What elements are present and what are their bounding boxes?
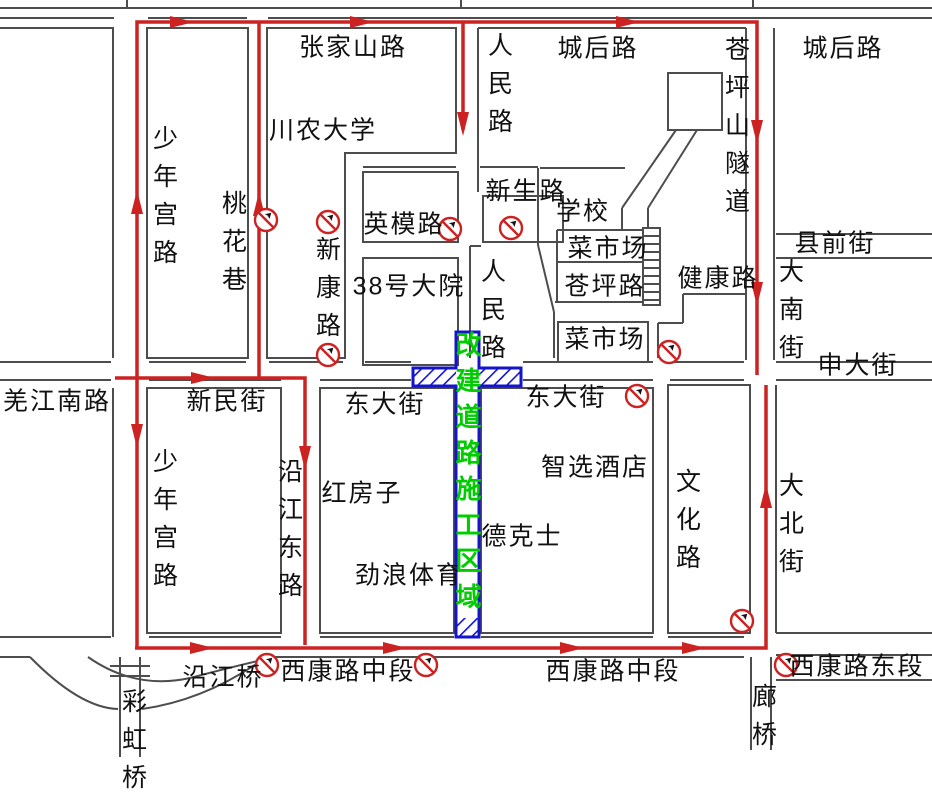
road-label-xinkang: 新康路 [314, 236, 339, 350]
detour-path-xikang [135, 385, 766, 648]
detour-arrow-icon [751, 120, 763, 144]
detour-arrow-icon [191, 372, 215, 384]
detour-arrow-icon [383, 642, 407, 654]
road-label-shaoniangong-south: 少年宫路 [151, 448, 176, 600]
road-label-xinsheng: 新生路 [485, 180, 566, 205]
detour-path-outer-loop [137, 22, 757, 648]
detour-arrow-icon [760, 484, 772, 508]
no-entry-sign-icon [317, 211, 339, 233]
construction-hatch-west [413, 368, 456, 386]
road-label-renmin-mid: 人民路 [479, 258, 504, 372]
place-label-hongfangzi: 红房子 [321, 482, 402, 507]
place-label-zhixuan-hotel: 智选酒店 [541, 456, 649, 481]
road-label-jiankang: 健康路 [677, 267, 758, 292]
road-label-wenhua: 文化路 [674, 468, 699, 582]
road-label-zhangjiashan: 张家山路 [299, 36, 407, 61]
place-label-yanjiang-bridge: 沿江桥 [182, 666, 263, 691]
no-entry-sign-icon [658, 341, 680, 363]
road-label-dongda-west: 东大街 [344, 393, 425, 418]
place-label-school: 学校 [556, 200, 610, 225]
road-label-xikang-east: 西康路东段 [789, 655, 924, 680]
detour-arrow-icon [131, 424, 143, 448]
place-label-jinlang-sports: 劲浪体育 [355, 564, 463, 589]
detour-arrow-icon [457, 112, 469, 136]
road-label-cangpingshan-tunnel: 苍坪山隧道 [723, 36, 748, 226]
road-label-chenghou-east: 城后路 [802, 37, 883, 62]
no-entry-sign-icon [415, 654, 437, 676]
detour-arrow-icon [131, 190, 143, 214]
construction-zone-label: 改建道路施工区域 [454, 331, 480, 619]
road-label-chenghou-mid: 城后路 [557, 37, 638, 62]
no-entry-sign-icon [626, 385, 648, 407]
detour-arrow-icon [682, 642, 706, 654]
place-label-no38-compound: 38号大院 [353, 275, 466, 300]
building-block [668, 73, 722, 130]
no-entry-sign-icon [255, 209, 277, 231]
no-entry-sign-icon [731, 610, 753, 632]
road-label-renmin-north: 人民路 [486, 32, 511, 146]
detour-arrow-icon [190, 642, 214, 654]
road-label-yingmo: 英模路 [363, 213, 444, 238]
road-label-xianqian: 县前街 [794, 232, 875, 257]
road-label-xinmin: 新民街 [186, 390, 267, 415]
road-label-xikang-middle-2: 西康路中段 [545, 660, 680, 685]
road-label-qiangjiang-south: 羌江南路 [3, 390, 111, 415]
place-label-market-lower: 菜市场 [564, 328, 645, 353]
detour-arrow-icon [560, 642, 584, 654]
place-label-chuannong-university: 川农大学 [269, 119, 377, 144]
road-detour-map: 张家山路 城后路 城后路 川农大学 新生路 英模路 学校 菜市场 苍坪路 菜市场… [0, 0, 932, 802]
road-label-dabei: 大北街 [777, 472, 802, 586]
road-label-cangping: 苍坪路 [564, 275, 645, 300]
road-label-danan: 大南街 [777, 258, 802, 372]
place-label-dicos: 德克士 [481, 525, 562, 550]
road-label-taohua: 桃花巷 [220, 190, 245, 304]
road-label-shaoniangong-north: 少年宫路 [151, 125, 176, 277]
place-label-langqiao: 廊桥 [750, 683, 775, 759]
road-label-dongda-east: 东大街 [525, 386, 606, 411]
road-label-shenda: 申大街 [817, 354, 898, 379]
construction-hatch-south [456, 618, 479, 637]
road-label-xikang-middle-1: 西康路中段 [280, 660, 415, 685]
place-label-caihong-bridge: 彩虹桥 [120, 688, 145, 802]
no-entry-sign-icon [500, 217, 522, 239]
place-label-market-upper: 菜市场 [567, 237, 648, 262]
road-label-yanjiang-east: 沿江东路 [276, 458, 301, 610]
